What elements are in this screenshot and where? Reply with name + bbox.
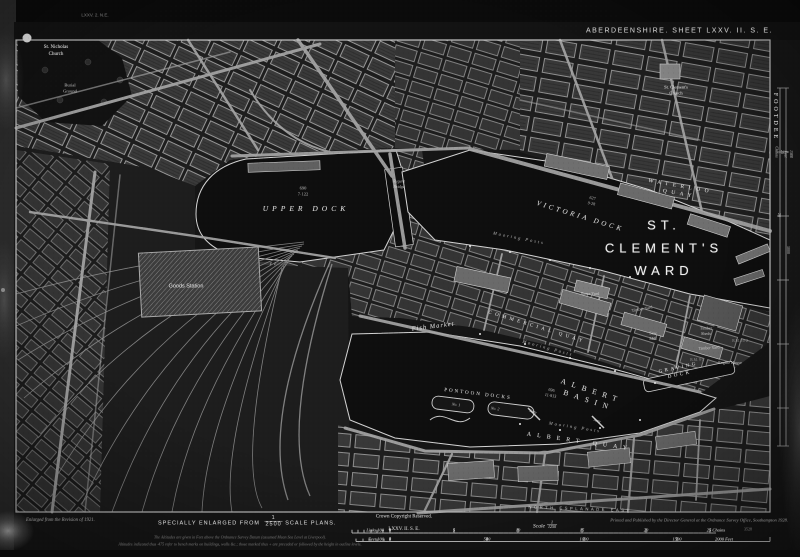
map-label-albert-quay: ALBERT QUAY	[526, 430, 633, 453]
map-label-ward-name: ST. CLEMENT'S WARD	[605, 214, 723, 282]
links-tick-value: 0	[389, 527, 391, 532]
map-label-st-nicholas-church: St. Nicholas Church	[44, 43, 68, 57]
feet-tick-value: 1000	[580, 536, 589, 541]
map-label-regent-bridge: Regent Bridge	[393, 178, 405, 189]
map-label-stone-yard: Stone Yard	[581, 291, 599, 297]
specially-suffix: SCALE PLANS.	[285, 520, 336, 526]
specially-enlarged-note: SPECIALLY ENLARGED FROM 12500 SCALE PLAN…	[158, 515, 336, 527]
map-label-fish-market: Fish Market	[411, 319, 455, 333]
map-label-pontoon-no1: No. 1	[451, 402, 460, 408]
map-label-margin-1000: 1000	[785, 246, 790, 254]
map-label-mooring-posts-2: Mooring Posts	[522, 338, 574, 357]
map-label-timber-sheds: Timber Sheds	[700, 325, 712, 336]
map-label-bench-mark-2: B.M. 9·1	[690, 357, 704, 362]
feet-bar-label: Feet 100	[368, 537, 384, 542]
map-label-saw-mill: Saw Mill	[649, 330, 656, 341]
map-label-footdee: FOOTDEE	[772, 93, 780, 141]
feet-tick-value: 2000 Feet	[715, 536, 733, 541]
map-label-upper-dock: UPPER DOCK	[263, 204, 349, 214]
map-label-albert-basin-area: 696 11·813	[544, 386, 558, 399]
map-photo: ABERDEENSHIRE. SHEET LXXV. II. S. E. LXX…	[0, 0, 800, 557]
links-tick-value: 10	[516, 527, 521, 532]
crown-copyright-block: Crown Copyright Reserved. LXXV. II. S. E…	[376, 514, 432, 533]
map-label-bench-mark-1: B.M. 10·2	[732, 338, 748, 343]
scale-word: Scale	[533, 523, 545, 529]
links-tick-value: 20	[644, 527, 649, 532]
map-label-waterloo-quay: WATERLOO QUAY	[646, 177, 713, 203]
map-label-margin-20: 20	[776, 213, 781, 217]
scale-fraction: 11250	[547, 521, 557, 530]
feet-tick-value: 1500	[673, 536, 682, 541]
map-label-burial-ground: Burial Ground	[63, 82, 77, 94]
map-label-adjoining-sheet-north: LXXV. 2. N.E.	[81, 12, 108, 18]
sheet-ref: LXXV. II. S. E.	[388, 526, 419, 532]
map-label-north-esplanade-east: NORTH ESPLANADE EAST	[528, 504, 631, 513]
map-label-margin-1500-feet: 1500 Feet	[783, 150, 794, 158]
links-tick-value: 25 Chains	[707, 527, 725, 532]
map-label-timber-yard-2: Timber Yard	[698, 344, 719, 351]
scale-statement: Scale11250	[533, 521, 557, 530]
map-label-pontoon-docks: PONTOON DOCKS	[444, 387, 512, 402]
links-tick-value: 15	[580, 527, 585, 532]
map-label-jetty-1: Jetty	[529, 408, 538, 415]
map-label-victoria-dock-area: 627 9·28	[587, 195, 597, 208]
map-label-commercial-quay: COMMERCIAL QUAY	[488, 309, 587, 345]
map-label-pontoon-no2: No. 2	[490, 406, 499, 412]
links-bar-label: Links 100	[366, 528, 384, 533]
print-code: 3528	[744, 527, 752, 532]
specially-prefix: SPECIALLY ENLARGED FROM	[158, 520, 260, 526]
enlarged-note: Enlarged from the Revision of 1921.	[26, 518, 95, 523]
map-label-jetty-2: Jetty	[593, 417, 602, 424]
sheet-title: ABERDEENSHIRE. SHEET LXXV. II. S. E.	[586, 26, 773, 34]
feet-tick-value: 500	[484, 536, 491, 541]
altitude-note-1: The Altitudes are given in Feet above th…	[154, 535, 326, 540]
altitude-note-2: Altitudes indicated thus ·475 refer to b…	[118, 542, 361, 547]
map-label-goods-station: Goods Station	[169, 282, 204, 289]
feet-tick-value: 0	[389, 536, 391, 541]
map-label-engine-house: Engine House	[718, 360, 742, 366]
map-label-upper-dock-area: 690 7·122	[298, 185, 309, 197]
source-scale-fraction: 12500	[264, 515, 282, 527]
links-tick-value: 5	[453, 527, 455, 532]
map-label-st-clements-church: St. Clement's Church	[664, 84, 688, 96]
crown-copyright: Crown Copyright Reserved.	[376, 514, 432, 520]
imprint: Printed and Published by the Director Ge…	[610, 518, 788, 523]
map-label-mooring-posts-1: Mooring Posts	[493, 230, 546, 246]
map-label-timber-yard-1: Timber Yard	[631, 304, 653, 313]
